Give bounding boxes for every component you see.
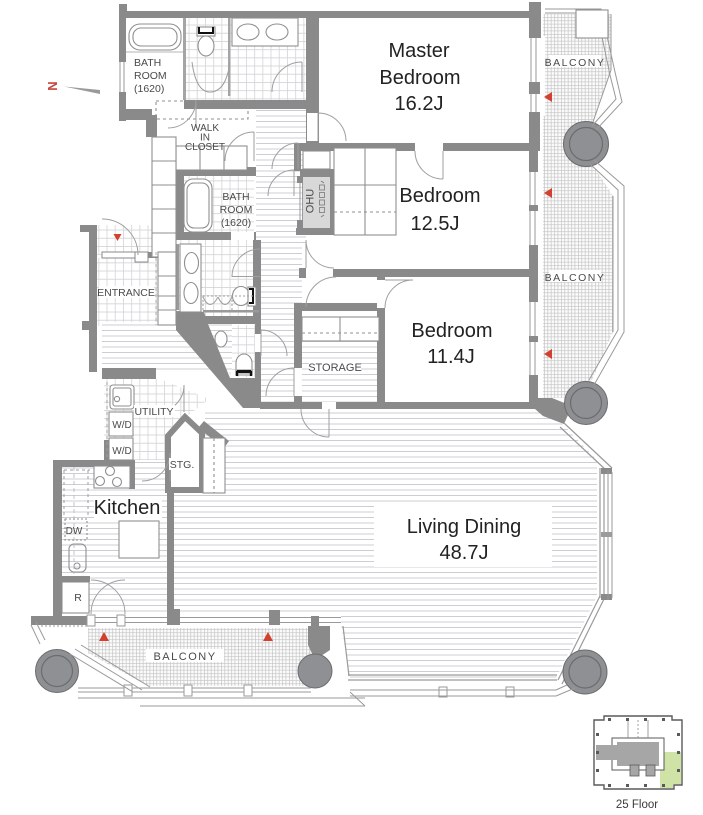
svg-text:11.4J: 11.4J [427, 346, 474, 368]
svg-text:16.2J: 16.2J [395, 93, 444, 115]
svg-text:BALCONY: BALCONY [545, 272, 606, 284]
svg-text:(1620): (1620) [221, 217, 251, 229]
svg-text:Bedroom: Bedroom [379, 67, 460, 89]
svg-text:DW: DW [66, 526, 83, 537]
svg-text:BATH: BATH [134, 57, 161, 69]
svg-text:STG.: STG. [170, 459, 195, 471]
svg-text:N: N [45, 81, 60, 90]
svg-text:48.7J: 48.7J [440, 542, 489, 564]
svg-text:CLOSET: CLOSET [185, 142, 225, 153]
svg-text:Bedroom: Bedroom [411, 320, 492, 342]
svg-text:ROOM: ROOM [134, 70, 167, 82]
svg-text:25 Floor: 25 Floor [616, 799, 658, 811]
svg-text:UTILITY: UTILITY [134, 406, 173, 418]
svg-text:(1620): (1620) [134, 83, 164, 95]
svg-text:12.5J: 12.5J [411, 213, 460, 235]
svg-text:W/D: W/D [112, 446, 131, 457]
svg-text:ROOM: ROOM [220, 204, 253, 216]
svg-text:W/D: W/D [112, 420, 131, 431]
svg-text:STORAGE: STORAGE [308, 362, 362, 374]
svg-text:R: R [74, 592, 82, 604]
svg-text:Master: Master [388, 40, 449, 62]
svg-text:Kitchen: Kitchen [94, 497, 161, 519]
svg-text:BALCONY: BALCONY [545, 57, 606, 69]
svg-text:Bedroom: Bedroom [399, 185, 480, 207]
svg-text:OHU: OHU [305, 189, 317, 214]
svg-text:BATH: BATH [222, 191, 249, 203]
svg-text:ENTRANCE: ENTRANCE [97, 287, 155, 299]
svg-text:BALCONY: BALCONY [153, 651, 216, 663]
svg-text:Living Dining: Living Dining [407, 516, 522, 538]
